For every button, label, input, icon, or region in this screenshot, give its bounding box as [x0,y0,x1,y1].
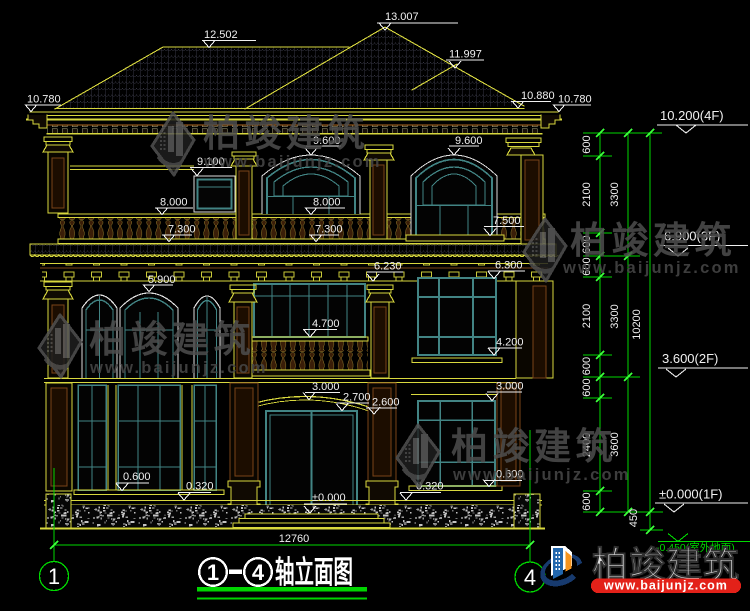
svg-text:12760: 12760 [279,533,310,545]
svg-text:3300: 3300 [609,182,621,206]
svg-text:10200: 10200 [631,309,643,340]
svg-text:11.997: 11.997 [449,49,482,61]
svg-text:600: 600 [581,357,593,375]
svg-text:www.baijunjz.com: www.baijunjz.com [562,259,741,277]
svg-text:2.700: 2.700 [343,392,371,404]
svg-text:9.600: 9.600 [455,135,483,147]
svg-text:柏竣建筑: 柏竣建筑 [89,318,255,360]
svg-text:2100: 2100 [581,304,593,328]
svg-text:8.000: 8.000 [313,197,341,209]
svg-text:3.600(2F): 3.600(2F) [662,351,718,366]
svg-text:2.600: 2.600 [372,397,400,409]
svg-text:www.baijunjz.com: www.baijunjz.com [203,153,382,171]
svg-text:www.baijunjz.com: www.baijunjz.com [89,359,268,377]
svg-text:0.600: 0.600 [123,471,151,483]
svg-text:www.baijunjz.com: www.baijunjz.com [603,579,728,593]
svg-text:3.000: 3.000 [312,381,340,393]
svg-text:600: 600 [581,492,593,510]
svg-text:1: 1 [48,564,60,589]
svg-text:8.000: 8.000 [160,197,188,209]
svg-text:3.000: 3.000 [496,381,524,393]
svg-text:柏竣建筑: 柏竣建筑 [203,112,369,154]
svg-text:5.900: 5.900 [148,274,176,286]
svg-text:轴立面图: 轴立面图 [275,555,353,590]
svg-text:12.502: 12.502 [204,29,238,41]
svg-text:10.880: 10.880 [521,90,555,102]
svg-text:±0.000: ±0.000 [312,492,346,504]
svg-text:4.700: 4.700 [312,318,340,330]
svg-text:600: 600 [581,378,593,396]
svg-text:www.baijunjz.com: www.baijunjz.com [452,466,631,484]
svg-text:4: 4 [252,560,265,585]
svg-text:10.200(4F): 10.200(4F) [660,108,724,123]
svg-text:10.780: 10.780 [27,94,61,106]
svg-text:±0.000(1F): ±0.000(1F) [659,487,723,502]
svg-text:450: 450 [628,509,640,527]
svg-text:3300: 3300 [609,304,621,328]
svg-text:7.300: 7.300 [168,224,196,236]
svg-text:7.300: 7.300 [315,224,343,236]
svg-text:柏竣建筑: 柏竣建筑 [451,425,617,467]
svg-text:10.780: 10.780 [558,94,592,106]
svg-text:4.200: 4.200 [496,337,524,349]
svg-text:1: 1 [207,560,219,585]
svg-text:7.500: 7.500 [493,215,521,227]
svg-text:2100: 2100 [581,182,593,206]
svg-text:6.230: 6.230 [374,261,402,273]
svg-text:600: 600 [581,135,593,153]
svg-text:0.320: 0.320 [186,481,214,493]
svg-text:柏竣建筑: 柏竣建筑 [570,219,736,261]
svg-text:13.007: 13.007 [385,11,419,23]
svg-text:4: 4 [524,565,536,590]
svg-text:6.300: 6.300 [495,260,523,272]
